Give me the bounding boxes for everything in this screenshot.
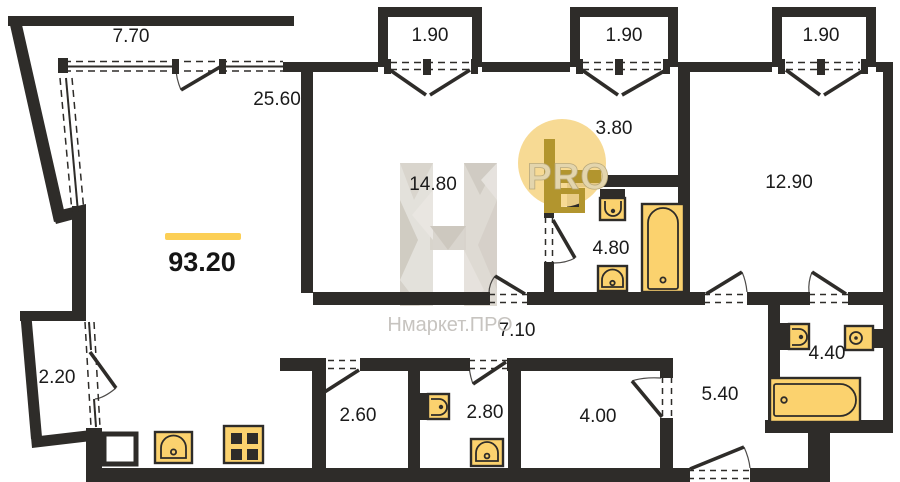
room-label: 25.60 bbox=[253, 89, 301, 110]
brand-watermark-text: Нмаркет.ПРО bbox=[387, 314, 512, 336]
total-area-value: 93.20 bbox=[168, 247, 236, 277]
floor-plan-canvas: 7.70 1.90 1.90 1.90 25.60 14.80 3.80 12.… bbox=[0, 0, 900, 482]
badge-label: PRO bbox=[527, 156, 610, 197]
room-label: 4.80 bbox=[593, 238, 630, 259]
room-label: 12.90 bbox=[765, 172, 813, 193]
bathtub-icon bbox=[642, 204, 684, 292]
accent-bar bbox=[165, 233, 241, 240]
kitchen-sink-icon bbox=[155, 432, 192, 463]
bathtub-icon bbox=[770, 378, 860, 422]
room-label: 1.90 bbox=[606, 25, 643, 46]
sink-icon bbox=[845, 326, 883, 350]
toilet-icon bbox=[418, 393, 449, 420]
room-label: 5.40 bbox=[702, 384, 739, 405]
sink-icon bbox=[471, 439, 503, 466]
toilet-icon bbox=[780, 323, 809, 350]
room-label: 4.40 bbox=[809, 343, 846, 364]
room-label: 4.00 bbox=[580, 406, 617, 427]
duct-shaft bbox=[104, 434, 136, 464]
room-label: 2.20 bbox=[39, 367, 76, 388]
floor-plan: 7.70 1.90 1.90 1.90 25.60 14.80 3.80 12.… bbox=[0, 0, 900, 482]
room-label: 3.80 bbox=[596, 118, 633, 139]
room-label: 2.60 bbox=[340, 405, 377, 426]
sink-icon bbox=[598, 266, 627, 291]
stove-icon bbox=[224, 426, 263, 463]
room-label: 2.80 bbox=[467, 402, 504, 423]
room-label: 1.90 bbox=[803, 25, 840, 46]
room-label: 14.80 bbox=[409, 174, 457, 195]
total-area: 93.20 bbox=[165, 233, 241, 277]
room-label: 1.90 bbox=[412, 25, 449, 46]
room-label: 7.70 bbox=[113, 26, 150, 47]
